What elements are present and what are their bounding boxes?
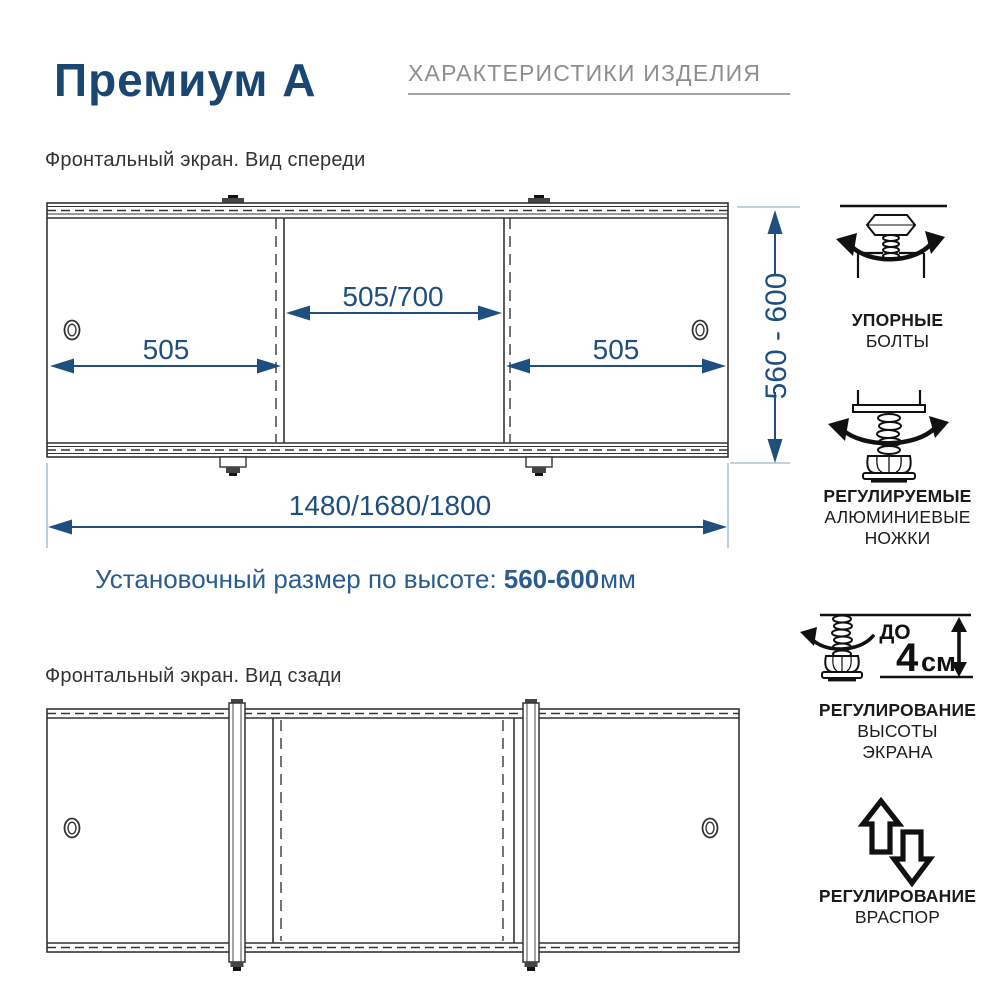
front-view-label: Фронтальный экран. Вид спереди [45,149,366,172]
foot-stub [220,457,552,476]
rear-bottom-rail [47,943,739,948]
install-note-value: 560-600 [504,564,599,594]
dimension-left-width: 505 [50,334,281,374]
feature-label-stop-bolts: УПОРНЫЕ БОЛТЫ [795,310,1000,352]
rear-view-label: Фронтальный экран. Вид сзади [45,665,342,688]
top-rail [47,207,728,219]
install-size-note: Установочный размер по высоте:560-600мм [95,564,636,595]
product-spec-sheet: Премиум А ХАРАКТЕРИСТИКИ ИЗДЕЛИЯ Фронтал… [0,0,1000,1000]
feature-label-adjustable-feet: РЕГУЛИРУЕМЫЕ АЛЮМИНИЕВЫЕ НОЖКИ [795,486,1000,549]
height-adjustment-icon: ДО 4 см [795,608,1000,688]
stop-bolt-icon [805,198,995,308]
support-post [523,699,539,971]
install-note-prefix: Установочный размер по высоте: [95,564,497,594]
svg-text:1480/1680/1800: 1480/1680/1800 [289,490,491,521]
adjustable-foot-icon [805,378,995,486]
svg-text:см: см [921,647,956,677]
svg-text:505: 505 [143,334,190,365]
rear-top-rail [47,714,739,719]
features-sidebar: УПОРНЫЕ БОЛТЫ РЕГУЛИРУЕМЫЕ АЛЮМИНИЕВЫЕ Н… [795,0,1000,1000]
svg-text:4: 4 [896,636,919,680]
rear-outline [47,709,739,952]
handle-icon [65,819,718,838]
rear-panel-edges [273,718,514,943]
svg-text:505: 505 [593,334,640,365]
top-bolt-tab [222,195,550,203]
install-note-unit: мм [600,564,636,594]
dimension-center-width: 505/700 [286,281,502,321]
page-title: Премиум А [54,53,316,107]
dimension-height: 560 - 600 [730,207,800,463]
expansion-arrows-icon [805,793,995,893]
bottom-rail [47,443,728,454]
screen-outline [47,203,728,457]
section-header: ХАРАКТЕРИСТИКИ ИЗДЕЛИЯ [408,60,790,95]
feature-label-brace-adjustment: РЕГУЛИРОВАНИЕ ВРАСПОР [795,886,1000,928]
feature-label-height-adjustment: РЕГУЛИРОВАНИЕ ВЫСОТЫ ЭКРАНА [795,700,1000,763]
svg-text:505/700: 505/700 [342,281,443,312]
dimension-right-width: 505 [506,334,726,374]
dimension-total-width: 1480/1680/1800 [47,463,728,548]
panel-dividers [276,218,510,443]
svg-text:560 - 600: 560 - 600 [760,273,793,400]
support-post [229,699,245,971]
